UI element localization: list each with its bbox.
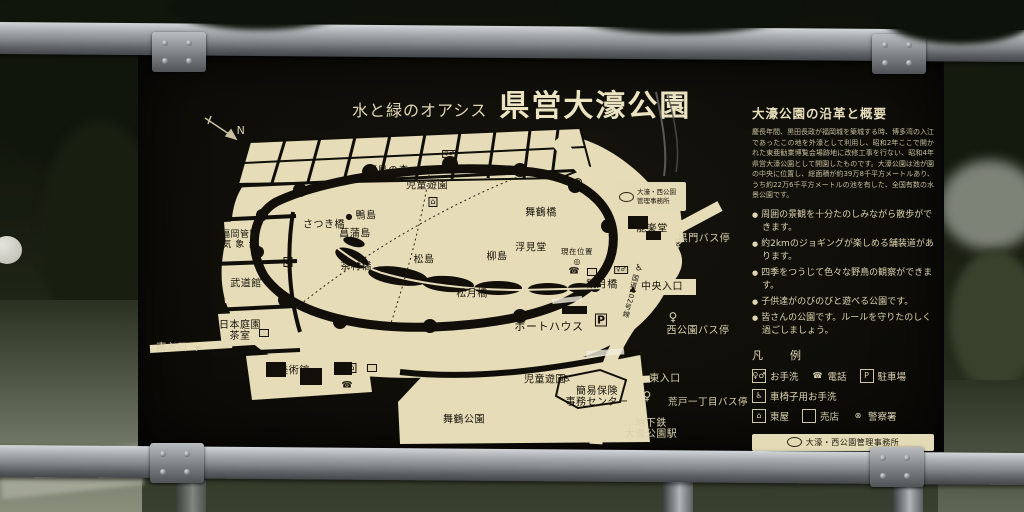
foliage-blob — [950, 250, 1024, 390]
history-paragraph: 慶長年間、黒田長政が福岡城を築城する時、博多湾の入江であったこの地を外濠として利… — [752, 127, 934, 201]
feature-bullet: 子供達がのびのびと遊べる公園です。 — [752, 296, 934, 309]
frame-corner-plate — [872, 34, 926, 74]
frame-corner-plate — [870, 447, 924, 487]
legend-item: ⊗警察署 — [852, 409, 897, 423]
toilet-icon: ♀♂ — [752, 369, 766, 383]
map-office-label: 大濠・西公園 管理事務所 — [637, 188, 676, 204]
legend-item: ♿車椅子用お手洗 — [752, 389, 837, 403]
legend-item: ☎電話 — [812, 369, 847, 383]
white-sphere-object — [0, 236, 22, 264]
police-icon: ⊗ — [852, 410, 864, 422]
title-subtitle: 水と緑のオアシス — [352, 97, 487, 121]
legend-item: ♀♂お手洗 — [752, 369, 799, 383]
legend-row: ♀♂お手洗☎電話P駐車場 — [752, 369, 934, 383]
feature-bullet: 周囲の景観を十分たのしみながら散歩ができます。 — [752, 209, 934, 235]
ground-right — [938, 380, 1024, 512]
legend-row: ♿車椅子用お手洗 — [752, 389, 934, 403]
phone-icon: ☎ — [812, 370, 824, 382]
feature-bullet-list: 周囲の景観を十分たのしみながら散歩ができます。約2kmのジョギングが楽しめる舗装… — [752, 209, 934, 338]
legend-item: 売店 — [802, 409, 839, 423]
legend-heading: 凡 例 — [752, 347, 934, 363]
frame-corner-plate — [150, 443, 204, 483]
map-office-box: 大濠・西公園 管理事務所 — [616, 182, 686, 211]
legend-item: P駐車場 — [860, 369, 907, 383]
legend-item: ⌂東屋 — [752, 409, 789, 423]
legend: ♀♂お手洗☎電話P駐車場♿車椅子用お手洗⌂東屋 売店⊗警察署 — [752, 369, 934, 423]
frame-corner-plate — [152, 32, 206, 72]
shop-icon — [802, 409, 816, 423]
feature-bullet: 四季をつうじて色々な野鳥の観察ができます。 — [752, 267, 934, 293]
info-column: 大濠公園の沿革と概要 慶長年間、黒田長政が福岡城を築城する時、博多湾の入江であっ… — [752, 103, 934, 475]
legend-label: 警察署 — [868, 409, 897, 423]
legend-label: 電話 — [828, 369, 847, 383]
legend-row: ⌂東屋 売店⊗警察署 — [752, 409, 934, 423]
office-logo-icon — [619, 192, 634, 202]
legend-label: 売店 — [820, 409, 839, 423]
legend-label: 東屋 — [770, 409, 789, 423]
legend-label: 駐車場 — [878, 369, 907, 383]
office-logo-icon — [787, 437, 802, 447]
legend-label: 車椅子用お手洗 — [770, 389, 837, 403]
wheelchair-icon: ♿ — [752, 389, 766, 403]
photo-of-park-sign: 水と緑のオアシス 県営大濠公園 大濠公園の沿革と概要 慶長年間、黒田長政が福岡城… — [0, 0, 1024, 512]
gazebo-icon: ⌂ — [752, 409, 766, 423]
frame-post — [663, 480, 693, 512]
legend-label: お手洗 — [770, 369, 799, 383]
frame-post — [176, 480, 206, 512]
feature-bullet: 皆さんの公園です。ルールを守りたのしく過ごしましょう。 — [752, 312, 934, 338]
title-main: 県営大濠公園 — [499, 81, 691, 125]
feature-bullet: 約2kmのジョギングが楽しめる舗装道があります。 — [752, 238, 934, 264]
parking-icon: P — [860, 369, 874, 383]
sign-title: 水と緑のオアシス 県営大濠公園 — [352, 81, 691, 125]
history-heading: 大濠公園の沿革と概要 — [752, 103, 934, 122]
park-sign-board: 水と緑のオアシス 県営大濠公園 大濠公園の沿革と概要 慶長年間、黒田長政が福岡城… — [140, 57, 942, 450]
foliage-blob — [940, 160, 1024, 250]
